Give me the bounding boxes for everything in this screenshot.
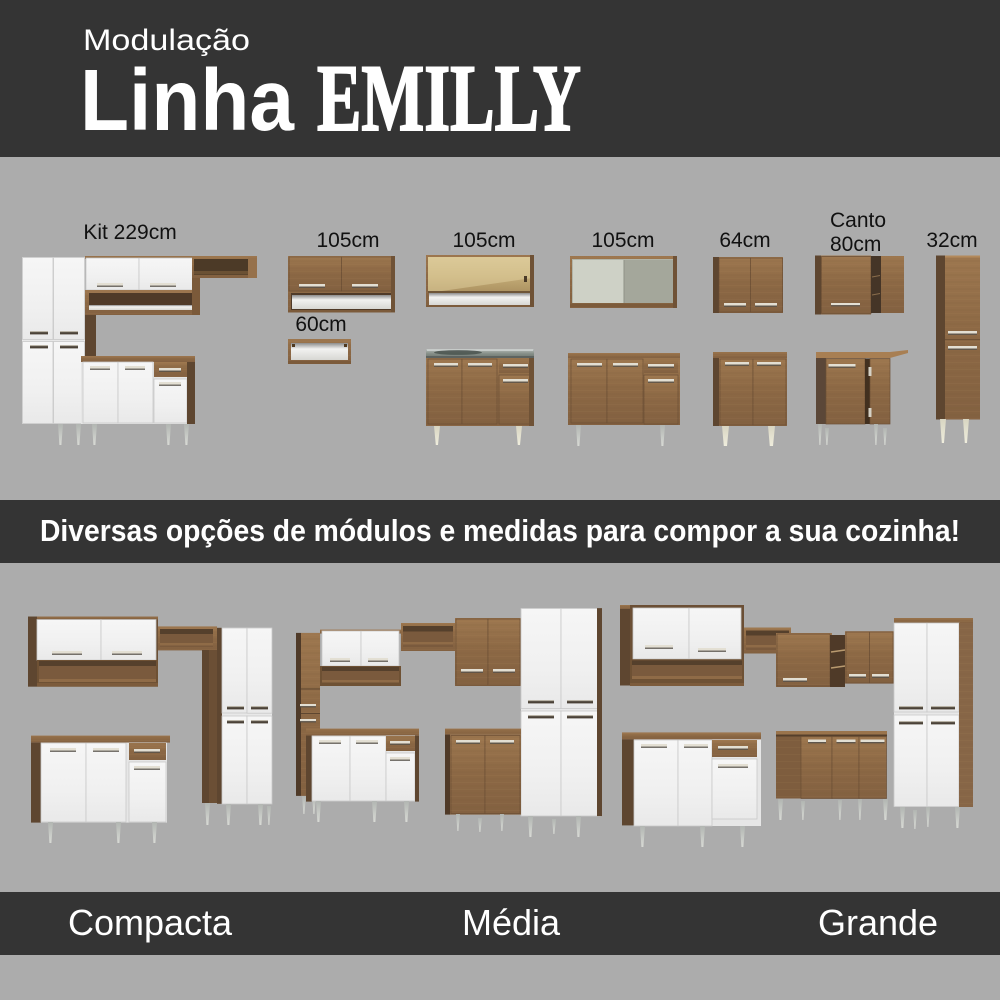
svg-text:Grande: Grande (818, 902, 938, 943)
svg-text:Diversas opções de módulos e m: Diversas opções de módulos e medidas par… (40, 513, 960, 548)
svg-text:60cm: 60cm (295, 313, 346, 336)
svg-text:64cm: 64cm (719, 229, 770, 252)
svg-text:80cm: 80cm (830, 233, 881, 256)
svg-text:32cm: 32cm (926, 229, 977, 252)
svg-text:Linha: Linha (80, 52, 295, 149)
svg-text:Kit 229cm: Kit 229cm (83, 221, 176, 244)
svg-text:Compacta: Compacta (68, 902, 233, 943)
svg-text:105cm: 105cm (316, 229, 379, 252)
svg-text:EMILLY: EMILLY (317, 45, 581, 151)
svg-text:Média: Média (462, 902, 561, 943)
svg-text:Canto: Canto (830, 209, 886, 232)
svg-text:105cm: 105cm (591, 229, 654, 252)
svg-text:105cm: 105cm (452, 229, 515, 252)
